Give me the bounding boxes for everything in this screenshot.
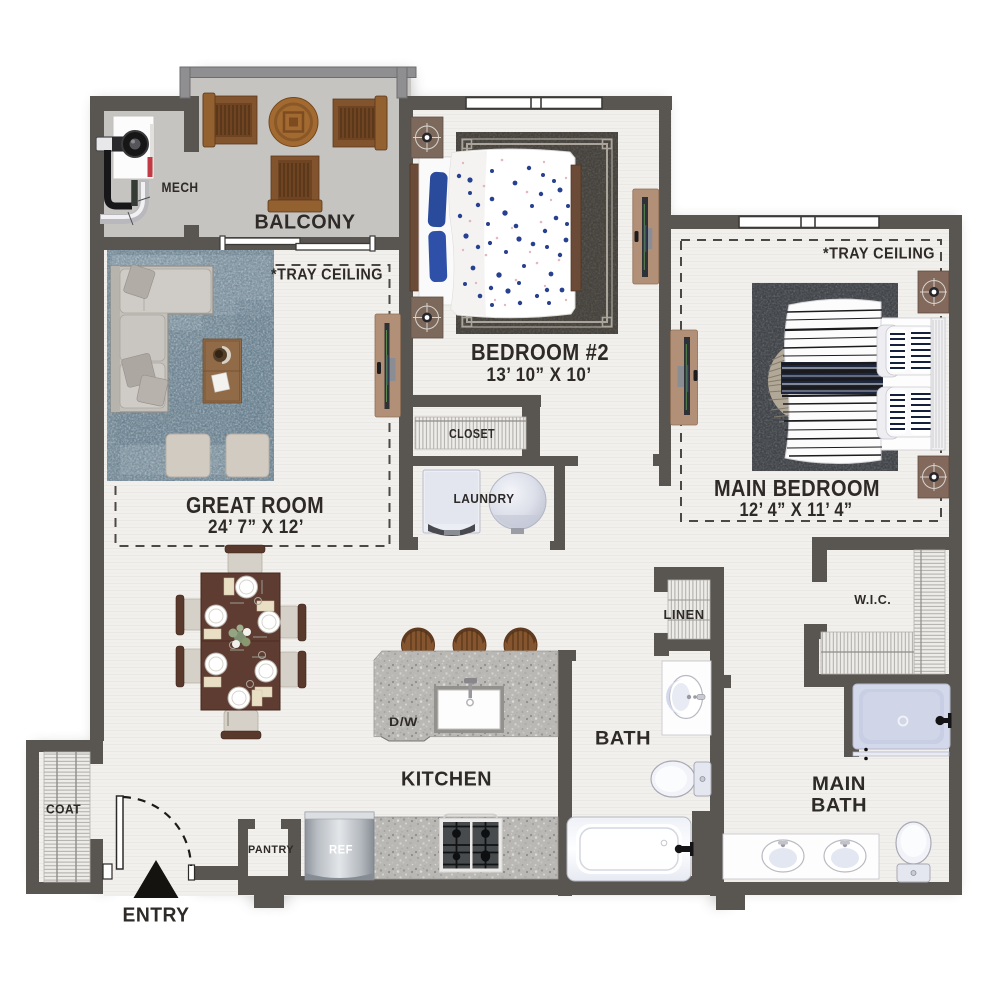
svg-text:BATH: BATH xyxy=(595,729,651,750)
svg-text:13’ 10” X 10’: 13’ 10” X 10’ xyxy=(487,365,592,386)
svg-text:BATH: BATH xyxy=(811,796,867,817)
svg-text:CLOSET: CLOSET xyxy=(449,426,495,441)
svg-text:PANTRY: PANTRY xyxy=(248,844,294,856)
svg-text:BALCONY: BALCONY xyxy=(255,212,356,234)
svg-text:MAIN: MAIN xyxy=(812,774,866,795)
svg-text:MAIN BEDROOM: MAIN BEDROOM xyxy=(714,475,880,501)
svg-text:COAT: COAT xyxy=(46,802,81,817)
svg-text:BEDROOM #2: BEDROOM #2 xyxy=(471,339,609,365)
svg-text:W.I.C.: W.I.C. xyxy=(854,592,891,607)
svg-text:24’ 7” X 12’: 24’ 7” X 12’ xyxy=(208,517,304,538)
svg-text:GREAT ROOM: GREAT ROOM xyxy=(186,492,324,518)
svg-text:REF: REF xyxy=(329,845,353,857)
svg-text:12’ 4” X 11’ 4”: 12’ 4” X 11’ 4” xyxy=(740,500,853,521)
svg-text:ENTRY: ENTRY xyxy=(123,905,190,927)
svg-text:*TRAY CEILING: *TRAY CEILING xyxy=(823,246,935,263)
svg-text:KITCHEN: KITCHEN xyxy=(401,768,492,791)
svg-text:MECH: MECH xyxy=(162,179,199,195)
svg-text:D/W: D/W xyxy=(389,715,418,729)
svg-text:*TRAY CEILING: *TRAY CEILING xyxy=(271,267,383,284)
svg-text:LAUNDRY: LAUNDRY xyxy=(454,491,515,506)
svg-text:LINEN: LINEN xyxy=(664,607,705,622)
